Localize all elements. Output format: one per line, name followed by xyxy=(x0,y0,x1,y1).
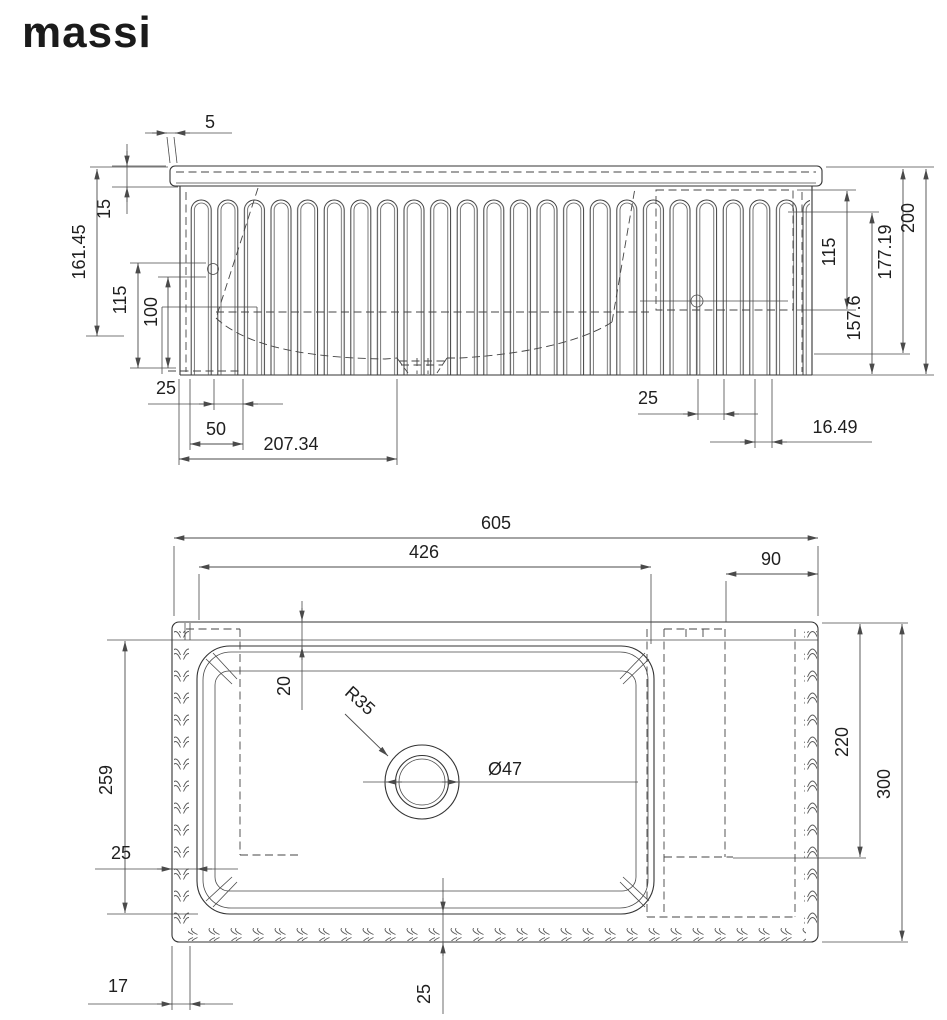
dim-label-flute-pitch-25: 25 xyxy=(156,378,176,398)
dim-label-drain-offset: 207.34 xyxy=(263,434,318,454)
flute-edge-bottom xyxy=(188,928,806,941)
dim-label-flute-pitch-50: 50 xyxy=(206,419,226,439)
dim-label-left-100: 100 xyxy=(141,297,161,327)
dim-label-overall-height: 200 xyxy=(898,203,918,233)
technical-drawing-page: massi xyxy=(0,0,947,1020)
sink-dimension-drawing: 5 15 161.45 115 xyxy=(0,0,947,1020)
dim-label-left-115: 115 xyxy=(110,286,130,315)
dim-label-right-115: 115 xyxy=(819,238,839,267)
top-plan-drawing: 605 426 90 20 R35 xyxy=(88,513,908,1014)
dim-label-rim-gap-20: 20 xyxy=(274,676,294,696)
dim-label-drain-diameter: Ø47 xyxy=(488,759,522,779)
dim-label-basin-width: 426 xyxy=(409,542,439,562)
dim-label-overall-depth: 300 xyxy=(874,769,894,799)
basin-outline xyxy=(197,646,654,914)
dim-label-bottom-gap-25: 25 xyxy=(414,984,434,1004)
dim-label-basin-depth-259: 259 xyxy=(96,765,116,795)
dim-label-left-gap-25: 25 xyxy=(111,843,131,863)
dim-label-shelf-width: 90 xyxy=(761,549,781,569)
dim-label-right-slot-16: 16.49 xyxy=(812,417,857,437)
flute-edge-left xyxy=(174,631,189,934)
dim-label-right-157: 157.6 xyxy=(844,295,864,340)
front-elevation-drawing: 5 15 161.45 115 xyxy=(69,112,934,465)
dim-label-right-177: 177.19 xyxy=(875,224,895,279)
dim-label-height-to-hole: 161.45 xyxy=(69,224,89,279)
dim-label-shelf-depth-220: 220 xyxy=(832,727,852,757)
flute-ribs-texture xyxy=(188,194,810,375)
dim-label-rim-overhang: 5 xyxy=(205,112,215,132)
flute-edge-right xyxy=(804,631,817,934)
dim-label-drain-radius: R35 xyxy=(341,682,379,719)
dim-label-flute-width-17: 17 xyxy=(108,976,128,996)
dim-label-overall-width: 605 xyxy=(481,513,511,533)
dim-label-right-slot-25: 25 xyxy=(638,388,658,408)
